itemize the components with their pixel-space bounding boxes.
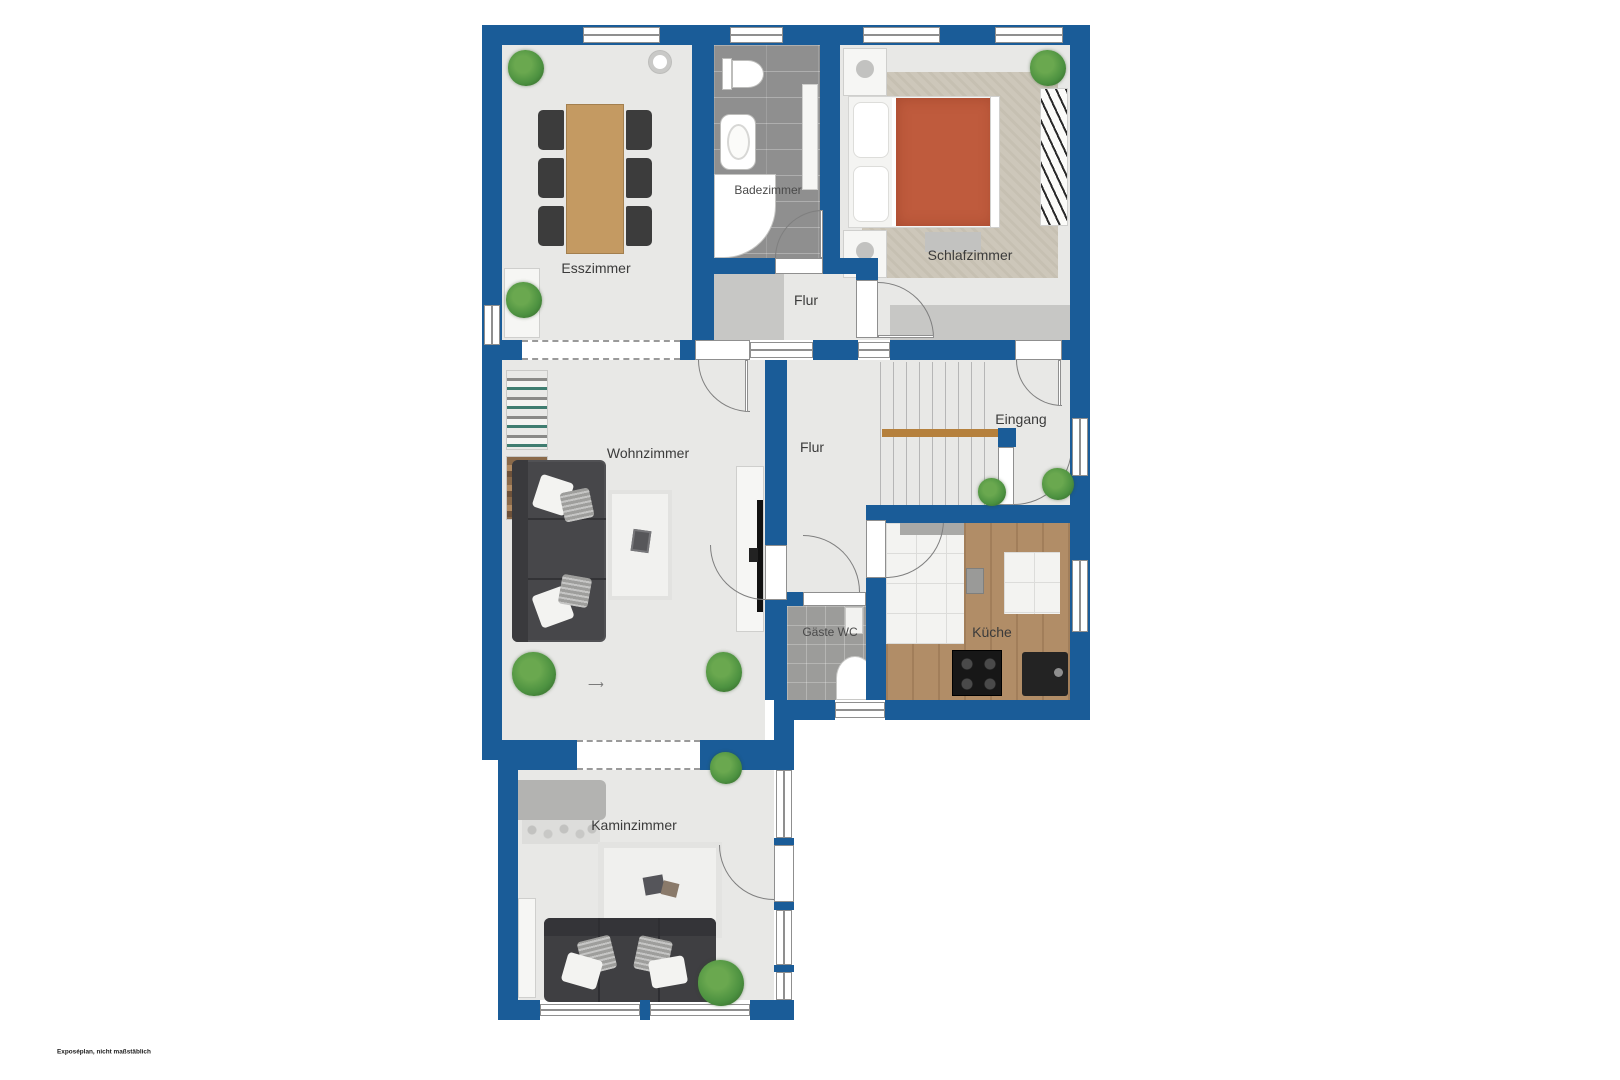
wall (765, 360, 787, 545)
wall (774, 838, 794, 845)
plant-icon (978, 478, 1006, 506)
nightstand-lamp-icon (856, 60, 874, 78)
wall (856, 258, 878, 282)
kitchen-appliance (966, 568, 984, 594)
door-leaf (745, 360, 748, 412)
ceiling-lamp-icon (649, 51, 671, 73)
window (650, 1004, 750, 1016)
wall (774, 720, 794, 770)
window (540, 1004, 640, 1016)
sofa-pillow (558, 574, 593, 609)
open-passage (577, 740, 700, 770)
plant-icon (508, 50, 544, 86)
door-kueche (866, 520, 886, 578)
window (484, 305, 500, 345)
kitchen-faucet-icon (1054, 668, 1063, 677)
room-label-schlafzimmer: Schlafzimmer (928, 247, 1013, 263)
plant-icon (512, 652, 556, 696)
disclaimer-text: Exposéplan, nicht maßstäblich (57, 1048, 151, 1055)
wall (750, 1000, 794, 1020)
window (730, 27, 783, 43)
bed-pillow (853, 166, 889, 222)
door-kaminzimmer (774, 845, 794, 902)
room-label-kueche: Küche (972, 624, 1012, 640)
plant-icon (1030, 50, 1066, 86)
room-label-gaeste-wc: Gäste WC (802, 625, 857, 639)
room-label-eingang: Eingang (995, 411, 1046, 427)
window (835, 702, 885, 718)
window (776, 972, 792, 1000)
wall (866, 505, 886, 520)
wall (482, 25, 502, 760)
toilet-bowl-icon (732, 60, 764, 88)
door-eingang (1015, 340, 1062, 360)
window (776, 770, 792, 838)
wall (498, 1000, 540, 1020)
wardrobe (1040, 88, 1068, 226)
wall (774, 965, 794, 972)
wall (692, 45, 714, 260)
wall (787, 592, 803, 606)
door-badezimmer (775, 258, 823, 274)
plant-icon (698, 960, 744, 1006)
hall-closet (714, 274, 784, 340)
kitchen-counter-cutout (1004, 552, 1060, 614)
wall (640, 1000, 650, 1020)
window (750, 342, 813, 358)
wall (680, 340, 695, 360)
wall (774, 902, 794, 910)
plant-icon (706, 652, 742, 692)
wall (866, 578, 886, 700)
bath-cabinet (802, 84, 818, 190)
window (858, 342, 890, 358)
fireplace-stones (522, 820, 600, 844)
window (1072, 418, 1088, 476)
door-wohnzimmer (765, 545, 787, 600)
room-label-kaminzimmer: Kaminzimmer (591, 817, 677, 833)
wall (886, 505, 1090, 523)
door-leaf (820, 210, 823, 258)
wall (1062, 340, 1090, 360)
plant-icon (710, 752, 742, 784)
door-leaf (878, 335, 934, 338)
wall (813, 340, 858, 360)
dining-chair (538, 206, 564, 246)
side-bench (518, 898, 536, 998)
wall (890, 340, 1015, 360)
window (995, 27, 1063, 43)
room-label-wohnzimmer: Wohnzimmer (607, 445, 689, 461)
bookshelf (506, 370, 548, 450)
plant-icon (1042, 468, 1074, 500)
direction-arrow-icon: ⟶ (588, 680, 612, 692)
dining-chair (538, 158, 564, 198)
dining-chair (626, 158, 652, 198)
window (863, 27, 940, 43)
sofa-backrest (512, 460, 528, 642)
room-label-badezimmer: Badezimmer (734, 183, 801, 197)
wall (498, 745, 518, 1020)
wall (765, 600, 787, 700)
door-gaeste-wc (803, 592, 866, 606)
bed-footboard (990, 96, 1000, 228)
wall (692, 258, 775, 274)
window (583, 27, 660, 43)
wall (774, 700, 835, 720)
room-label-esszimmer: Esszimmer (561, 260, 630, 276)
stove-icon (952, 650, 1002, 696)
sofa-backrest (544, 918, 716, 936)
door-leaf (1058, 360, 1061, 406)
sofa-pillow (559, 487, 595, 523)
dining-chair (626, 110, 652, 150)
bed-pillow (853, 102, 889, 158)
open-passage (522, 340, 680, 360)
window (776, 910, 792, 965)
fireplace (518, 780, 606, 820)
floor-plan: ⟶ (0, 0, 1620, 1080)
dining-chair (626, 206, 652, 246)
table-decor (631, 529, 652, 553)
wall (820, 45, 840, 260)
room-label-flur-mitte: Flur (800, 439, 824, 455)
stair-newel-post (998, 428, 1016, 447)
bed-blanket (892, 98, 994, 226)
stair-handrail (882, 429, 1002, 437)
dining-chair (538, 110, 564, 150)
wall (885, 700, 1090, 720)
door-schlafzimmer (856, 280, 878, 338)
wall (692, 274, 714, 340)
plant-icon (506, 282, 542, 318)
room-label-flur-oben: Flur (794, 292, 818, 308)
door-wohnzimmer-nord (695, 340, 750, 360)
window (1072, 560, 1088, 632)
sink-basin-icon (727, 124, 750, 160)
toilet-icon (722, 58, 732, 90)
dining-table (566, 104, 624, 254)
